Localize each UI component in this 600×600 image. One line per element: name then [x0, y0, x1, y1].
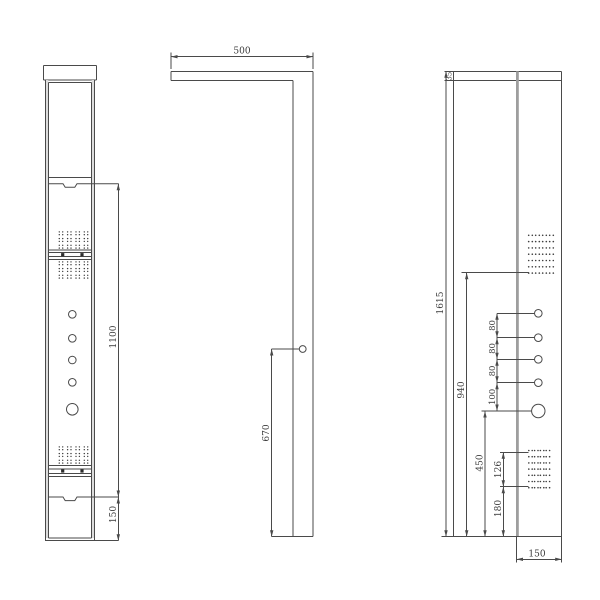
view-detail-elevation: 351615940808080100450126180150	[436, 71, 562, 562]
jet-dot	[70, 234, 71, 235]
jet-dot	[62, 462, 63, 463]
dim-arrow	[502, 530, 505, 537]
dim-arrow	[502, 487, 505, 494]
jet-dot	[84, 277, 85, 278]
jet-dot	[75, 449, 76, 450]
technical-drawing-canvas: 1100150500670351615940808080100450126180…	[0, 0, 600, 600]
control-knob-2	[535, 334, 543, 342]
jet-dot	[546, 260, 548, 262]
jet-dot	[84, 449, 85, 450]
dim-arrow	[270, 530, 273, 537]
jet-dot	[67, 245, 68, 246]
jet-dot	[87, 245, 88, 246]
jet-dot	[59, 446, 60, 447]
jet-dot	[79, 453, 80, 454]
holder-bar-upper	[48, 250, 91, 259]
dim-arrow	[117, 534, 120, 541]
dim-label: 100	[488, 389, 498, 405]
jet-dot	[62, 449, 63, 450]
jet-dot	[70, 238, 71, 239]
jet-dot	[84, 264, 85, 265]
jet-dot	[79, 241, 80, 242]
jet-dot	[70, 261, 71, 262]
jet-dot	[67, 241, 68, 242]
jet-dot	[84, 238, 85, 239]
control-knob-3	[535, 356, 543, 364]
jet-dot	[59, 453, 60, 454]
jet-dot	[543, 475, 545, 477]
jet-dot	[531, 481, 533, 483]
jet-dot	[70, 446, 71, 447]
jet-dot	[549, 253, 551, 255]
jet-dot	[75, 264, 76, 265]
jet-dot	[534, 468, 536, 470]
jet-dot	[87, 453, 88, 454]
dim-arrow	[465, 273, 468, 280]
jet-dot	[67, 462, 68, 463]
jet-dot	[70, 460, 71, 461]
jet-dot	[84, 247, 85, 248]
jet-dot	[59, 460, 60, 461]
jet-dot	[531, 462, 533, 464]
jet-dot	[549, 247, 551, 249]
jet-dot	[67, 277, 68, 278]
jet-dot	[528, 253, 530, 255]
jet-dot	[75, 271, 76, 272]
jet-dot	[79, 456, 80, 457]
jet-dot	[67, 271, 68, 272]
jet-dot	[549, 272, 551, 274]
jet-dot	[535, 266, 537, 268]
jet-dot	[62, 460, 63, 461]
jet-dot	[549, 241, 551, 243]
jet-dot	[528, 456, 530, 458]
jet-dot	[542, 247, 544, 249]
jet-dot	[537, 481, 539, 483]
jet-dot	[553, 247, 555, 249]
jet-dot	[537, 450, 539, 452]
jet-dot	[79, 238, 80, 239]
control-knob-1	[69, 311, 77, 319]
view-side-elevation: 500670	[171, 47, 313, 537]
jet-dot	[549, 487, 551, 489]
jet-dot	[59, 247, 60, 248]
jet-dot	[528, 241, 530, 243]
control-knob-1	[535, 310, 543, 318]
jet-dot	[67, 453, 68, 454]
jet-dot	[553, 253, 555, 255]
dimension-126: 126	[494, 452, 505, 486]
spray-jet-grid-a	[59, 231, 89, 249]
jet-dot	[539, 260, 541, 262]
jet-dot	[59, 271, 60, 272]
dim-arrow	[307, 55, 314, 58]
jet-dot	[79, 268, 80, 269]
jet-dot	[59, 268, 60, 269]
dim-arrow	[483, 530, 486, 537]
jet-dot	[87, 261, 88, 262]
jet-dot	[532, 260, 534, 262]
jet-dot	[75, 456, 76, 457]
jet-dot	[540, 487, 542, 489]
jet-dot	[59, 449, 60, 450]
jet-dot	[87, 247, 88, 248]
jet-dot	[545, 456, 547, 458]
dim-label: 1100	[109, 325, 119, 348]
jet-dot	[528, 462, 530, 464]
jet-dot	[87, 446, 88, 447]
dim-label: 500	[233, 47, 250, 57]
jet-dot	[70, 231, 71, 232]
notch-line-upper	[48, 184, 118, 188]
shower-arm	[171, 71, 313, 80]
dim-arrow	[495, 383, 498, 390]
jet-dot	[540, 481, 542, 483]
jet-dot	[62, 277, 63, 278]
jet-dot	[553, 272, 555, 274]
jet-dot	[545, 481, 547, 483]
holder-stud	[61, 253, 64, 256]
jet-dot	[59, 264, 60, 265]
jet-dot	[553, 266, 555, 268]
dimension-500: 500	[171, 47, 313, 70]
jet-dot	[62, 271, 63, 272]
jet-dot	[84, 275, 85, 276]
jet-dot	[62, 446, 63, 447]
jet-dot	[84, 234, 85, 235]
jet-dot	[84, 453, 85, 454]
jet-dot	[75, 247, 76, 248]
dimension-150-base: 150	[109, 497, 120, 541]
jet-dot	[532, 241, 534, 243]
jet-dot	[539, 235, 541, 237]
jet-dot	[542, 235, 544, 237]
jet-dot	[79, 449, 80, 450]
jet-dot	[62, 238, 63, 239]
jet-dot	[62, 247, 63, 248]
notch-line-lower	[48, 497, 118, 501]
jet-dot	[528, 468, 530, 470]
jet-dot	[549, 468, 551, 470]
holder-stud	[61, 469, 64, 472]
jet-dot	[535, 235, 537, 237]
jet-dot	[84, 462, 85, 463]
jet-dot	[543, 450, 545, 452]
dim-label: 450	[476, 454, 486, 471]
jet-dot	[545, 450, 547, 452]
dim-label: 940	[457, 381, 467, 398]
jet-dot	[535, 253, 537, 255]
jet-dot	[75, 231, 76, 232]
jet-dot	[549, 266, 551, 268]
dim-arrow	[117, 491, 120, 498]
control-knob-4	[69, 379, 77, 387]
jet-dot	[543, 487, 545, 489]
jet-dot	[87, 460, 88, 461]
spray-jet-grid-c	[59, 446, 89, 464]
jet-dot	[67, 247, 68, 248]
jet-dot	[534, 481, 536, 483]
jet-dot	[75, 460, 76, 461]
jet-dot	[87, 241, 88, 242]
dim-label: 80	[488, 366, 498, 377]
jet-dot	[84, 460, 85, 461]
jet-dot	[70, 277, 71, 278]
jet-dot	[531, 475, 533, 477]
jet-dot	[70, 245, 71, 246]
dimension-940: 940	[457, 273, 468, 537]
dim-label: 150	[528, 549, 545, 559]
jet-dot	[62, 268, 63, 269]
jet-dot	[79, 264, 80, 265]
dimension-670: 670	[262, 349, 273, 537]
jet-dot	[543, 456, 545, 458]
jet-dot	[79, 446, 80, 447]
dim-arrow	[495, 359, 498, 366]
jet-dot	[539, 272, 541, 274]
jet-dot	[532, 247, 534, 249]
jet-dot	[539, 253, 541, 255]
control-knob-3	[69, 356, 77, 364]
jet-dot	[87, 264, 88, 265]
jet-dot	[84, 456, 85, 457]
jet-dot	[67, 234, 68, 235]
jet-dot	[70, 449, 71, 450]
jet-dot	[543, 468, 545, 470]
jet-dot	[549, 462, 551, 464]
jet-dot	[549, 450, 551, 452]
dim-arrow	[495, 313, 498, 320]
jet-dot	[539, 247, 541, 249]
jet-dot	[546, 266, 548, 268]
jet-dot	[62, 245, 63, 246]
shower-panel-technical-drawing: 1100150500670351615940808080100450126180…	[0, 0, 600, 600]
jet-dot	[67, 261, 68, 262]
jet-dot	[79, 261, 80, 262]
jet-dot	[59, 231, 60, 232]
jet-dot	[534, 450, 536, 452]
jet-dot	[539, 266, 541, 268]
jet-dot	[537, 468, 539, 470]
jet-dot	[59, 234, 60, 235]
jet-dot	[67, 460, 68, 461]
jet-dot	[79, 231, 80, 232]
jet-dot	[87, 277, 88, 278]
jet-dot	[84, 268, 85, 269]
jet-dot	[79, 462, 80, 463]
jet-dot	[534, 487, 536, 489]
jet-dot	[84, 271, 85, 272]
dim-label: 80	[488, 343, 498, 354]
jet-dot	[546, 253, 548, 255]
jet-dot	[79, 460, 80, 461]
jet-dot	[532, 266, 534, 268]
jet-dot	[535, 272, 537, 274]
jet-dot	[528, 247, 530, 249]
jet-dot	[84, 245, 85, 246]
jet-dot	[62, 234, 63, 235]
jet-dot	[62, 453, 63, 454]
jet-dot	[545, 487, 547, 489]
jet-dot	[59, 241, 60, 242]
outlet-knob	[299, 346, 306, 353]
dim-arrow	[444, 530, 447, 537]
jet-dot	[70, 271, 71, 272]
dimension-450: 450	[476, 411, 487, 537]
jet-dot	[545, 468, 547, 470]
jet-dot	[542, 253, 544, 255]
jet-dot	[537, 462, 539, 464]
jet-dot	[535, 241, 537, 243]
dim-label: 1615	[436, 291, 446, 314]
jet-dot	[70, 456, 71, 457]
jet-dot	[534, 462, 536, 464]
jet-dot	[542, 266, 544, 268]
jet-dot	[70, 453, 71, 454]
jet-dot	[70, 247, 71, 248]
jet-dot	[62, 241, 63, 242]
jet-dot	[537, 475, 539, 477]
jet-dot	[59, 245, 60, 246]
jet-dot	[545, 462, 547, 464]
jet-dot	[549, 456, 551, 458]
jet-dot	[70, 241, 71, 242]
jet-dot	[67, 449, 68, 450]
dim-arrow	[502, 452, 505, 459]
control-knob-main	[532, 404, 545, 417]
jet-dot	[75, 462, 76, 463]
holder-stud	[80, 469, 83, 472]
control-knob-4	[535, 379, 543, 387]
jet-dot	[540, 456, 542, 458]
jet-dot	[75, 238, 76, 239]
jet-dot	[79, 234, 80, 235]
jet-dot	[531, 450, 533, 452]
jet-dot	[542, 272, 544, 274]
holder-stud	[80, 253, 83, 256]
jet-dot	[532, 253, 534, 255]
jet-dot	[528, 450, 530, 452]
jet-dot	[540, 450, 542, 452]
jet-dot	[528, 481, 530, 483]
view-front-elevation: 1100150	[43, 65, 120, 541]
dim-arrow	[117, 497, 120, 504]
jet-dot	[87, 449, 88, 450]
dim-label: 126	[494, 461, 504, 478]
jet-dot	[87, 456, 88, 457]
jet-dot	[67, 264, 68, 265]
dim-arrow	[555, 558, 562, 561]
jet-dot	[62, 264, 63, 265]
jet-dot	[75, 277, 76, 278]
panel-column	[272, 71, 313, 536]
jet-dot	[528, 475, 530, 477]
jet-dot	[75, 275, 76, 276]
jet-dot	[531, 487, 533, 489]
jet-dot	[553, 241, 555, 243]
jet-dot	[62, 275, 63, 276]
jet-dot	[84, 446, 85, 447]
jet-dot	[534, 475, 536, 477]
jet-dot	[84, 261, 85, 262]
dim-arrow	[270, 349, 273, 356]
jet-dot	[75, 245, 76, 246]
top-cap	[43, 65, 96, 80]
jet-dot	[62, 231, 63, 232]
jet-dot	[59, 261, 60, 262]
jet-dot	[537, 456, 539, 458]
jet-dot	[79, 245, 80, 246]
jet-dot	[87, 275, 88, 276]
jet-dot	[535, 247, 537, 249]
jet-dot	[70, 264, 71, 265]
jet-dot	[528, 235, 530, 237]
spray-jet-grid-b	[59, 261, 89, 279]
jet-dot	[79, 275, 80, 276]
jet-dot	[87, 231, 88, 232]
jet-dot	[75, 446, 76, 447]
dim-arrow	[495, 331, 498, 338]
dimension-150-width: 150	[517, 537, 562, 563]
jet-dot	[87, 462, 88, 463]
jet-dot	[62, 261, 63, 262]
jet-dot	[528, 266, 530, 268]
jet-dot	[553, 260, 555, 262]
jet-dot	[84, 241, 85, 242]
dim-label: 180	[494, 500, 504, 517]
spray-jet-grid-bottom	[528, 450, 550, 489]
jet-dot	[549, 260, 551, 262]
dim-label: 150	[109, 506, 119, 523]
jet-dot	[59, 456, 60, 457]
jet-dot	[59, 275, 60, 276]
jet-dot	[67, 238, 68, 239]
jet-dot	[546, 272, 548, 274]
jet-dot	[70, 275, 71, 276]
jet-dot	[67, 275, 68, 276]
jet-dot	[528, 260, 530, 262]
holder-bar-lower	[48, 466, 91, 477]
jet-dot	[549, 475, 551, 477]
jet-dot	[534, 456, 536, 458]
dimension-1615: 1615	[436, 71, 448, 536]
jet-dot	[59, 277, 60, 278]
dim-arrow	[117, 184, 120, 191]
jet-dot	[87, 238, 88, 239]
jet-dot	[543, 481, 545, 483]
spray-jet-grid-top	[528, 235, 554, 274]
jet-dot	[532, 235, 534, 237]
jet-dot	[75, 268, 76, 269]
dim-arrow	[465, 530, 468, 537]
jet-dot	[537, 487, 539, 489]
jet-dot	[87, 234, 88, 235]
control-knob-2	[69, 335, 77, 343]
dim-label: 80	[488, 320, 498, 331]
jet-dot	[62, 456, 63, 457]
jet-dot	[540, 475, 542, 477]
jet-dot	[539, 241, 541, 243]
jet-dot	[59, 462, 60, 463]
jet-dot	[535, 260, 537, 262]
jet-dot	[549, 235, 551, 237]
jet-dot	[67, 268, 68, 269]
jet-dot	[75, 453, 76, 454]
jet-dot	[75, 241, 76, 242]
dim-arrow	[483, 411, 486, 418]
jet-dot	[70, 462, 71, 463]
jet-dot	[532, 272, 534, 274]
